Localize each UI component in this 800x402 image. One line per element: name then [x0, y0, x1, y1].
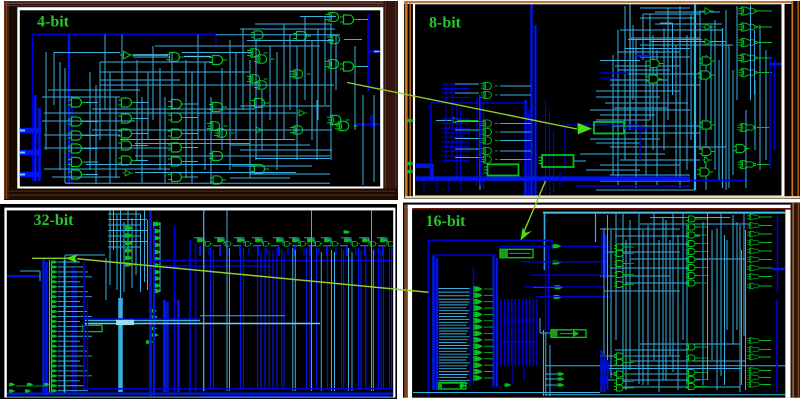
- svg-text:8-bit: 8-bit: [429, 15, 462, 32]
- svg-text:16-bit: 16-bit: [426, 213, 467, 230]
- svg-text:32-bit: 32-bit: [34, 212, 75, 229]
- svg-text:4-bit: 4-bit: [37, 14, 70, 31]
